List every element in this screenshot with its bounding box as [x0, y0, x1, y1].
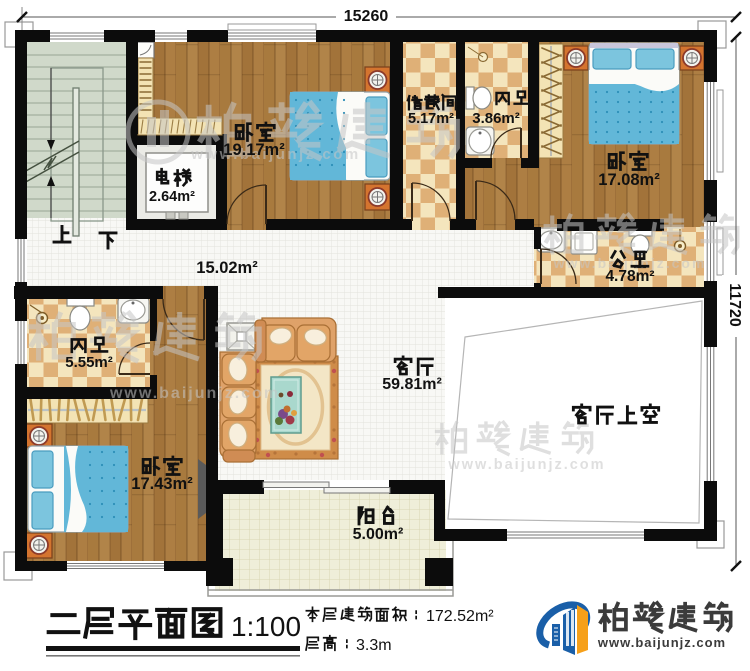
svg-text:15.02m²: 15.02m²	[196, 259, 258, 277]
svg-text:www.baijunjz.com: www.baijunjz.com	[447, 457, 605, 473]
svg-text:5.17m²: 5.17m²	[408, 111, 454, 127]
svg-text:www.baijunjz.com: www.baijunjz.com	[109, 385, 280, 402]
svg-text:172.52m²: 172.52m²	[426, 608, 494, 625]
svg-text:2.64m²: 2.64m²	[149, 189, 195, 205]
svg-text:5.00m²: 5.00m²	[353, 526, 404, 543]
svg-text:5.55m²: 5.55m²	[65, 354, 113, 371]
svg-text:3.86m²: 3.86m²	[472, 110, 520, 127]
svg-text:4.78m²: 4.78m²	[605, 268, 654, 285]
svg-text:11720: 11720	[726, 283, 743, 327]
svg-text:www.baijunjz.com: www.baijunjz.com	[597, 635, 726, 650]
svg-text:19.17m²: 19.17m²	[223, 141, 285, 159]
svg-text:15260: 15260	[344, 8, 389, 25]
svg-text:1:100: 1:100	[231, 611, 301, 642]
svg-text:17.08m²: 17.08m²	[598, 171, 660, 189]
svg-text:3.3m: 3.3m	[356, 637, 392, 654]
svg-text:17.43m²: 17.43m²	[131, 475, 193, 493]
svg-text:59.81m²: 59.81m²	[382, 376, 442, 393]
